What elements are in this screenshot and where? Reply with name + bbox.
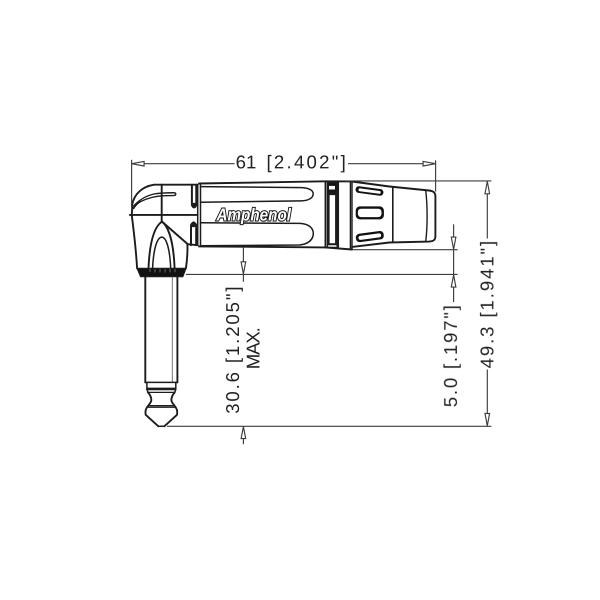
svg-text:MAX.: MAX. [242,327,263,369]
svg-text:61: 61 [236,151,257,172]
svg-text:[2.402"]: [2.402"] [266,151,345,172]
svg-text:30.6 [1.205"]: 30.6 [1.205"] [222,287,243,414]
svg-text:Amphenol: Amphenol [216,204,292,224]
svg-text:49.3 [1.941"]: 49.3 [1.941"] [476,241,497,369]
